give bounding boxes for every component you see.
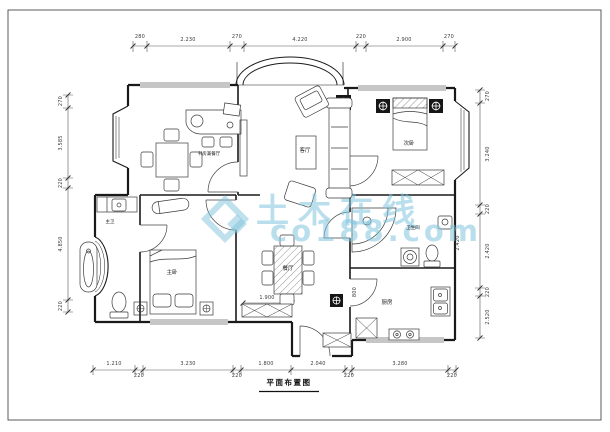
floor-plan-canvas: 土木在线 co188.com 书房兼餐厅 客厅 次卧 主卧 主卫 餐厅 厨房 卫… <box>0 0 610 432</box>
room-label-bath2: 卫生间 <box>406 225 420 231</box>
dim-label-bottom: 220 <box>344 373 354 379</box>
column-icon <box>330 294 343 307</box>
dim-label-left: 220 <box>58 301 64 311</box>
dim-label-inner: 2.420 <box>455 235 461 250</box>
dim-label-left: 220 <box>58 178 64 188</box>
room-label-master-bedroom: 主卧 <box>166 268 177 276</box>
furniture-entry <box>323 333 351 347</box>
room-label-kitchen: 厨房 <box>381 298 392 306</box>
dim-label-top: 2.900 <box>396 37 411 43</box>
dim-label-inner: 1.900 <box>259 295 274 301</box>
dim-label-top: 270 <box>232 34 242 40</box>
dim-label-bottom: 220 <box>447 373 457 379</box>
dim-label-top: 220 <box>356 34 366 40</box>
dim-label-bottom: 2.040 <box>310 361 325 367</box>
column-icon <box>429 99 443 113</box>
column-icon <box>376 99 390 113</box>
dim-label-bottom: 1.800 <box>258 361 273 367</box>
room-label-master-bath: 主卫 <box>106 219 115 225</box>
room-label-living: 客厅 <box>299 146 310 154</box>
dim-label-top: 4.220 <box>292 37 307 43</box>
dim-label-bottom: 1.210 <box>106 361 121 367</box>
furniture-master-bath <box>80 197 137 318</box>
dim-label-bottom: 220 <box>134 373 144 379</box>
dim-label-left: 4.850 <box>58 236 64 251</box>
dim-label-left: 270 <box>58 96 64 106</box>
watermark-site: co188.com <box>270 214 482 248</box>
watermark: 土木在线 co188.com <box>196 186 496 256</box>
dim-label-right: 270 <box>485 91 491 101</box>
drawing-title: 平面布置图 <box>267 377 312 388</box>
dim-label-right: 2.520 <box>485 309 491 324</box>
dim-label-bottom: 3.280 <box>392 361 407 367</box>
room-label-bedroom2: 次卧 <box>403 139 414 147</box>
dim-label-bottom: 220 <box>232 373 242 379</box>
balcony-arch <box>236 57 344 85</box>
room-label-dining: 餐厅 <box>282 264 293 272</box>
dim-label-bottom: 3.230 <box>180 361 195 367</box>
dim-label-inner: 800 <box>352 287 358 297</box>
dim-label-right: 220 <box>485 287 491 297</box>
dim-label-right: 2.420 <box>485 243 491 258</box>
dim-label-right: 3.240 <box>485 146 491 161</box>
room-label-study-dining: 书房兼餐厅 <box>198 151 221 157</box>
dim-label-top: 270 <box>444 34 454 40</box>
dim-label-top: 2.230 <box>180 37 195 43</box>
dim-label-left: 3.585 <box>58 135 64 150</box>
furniture-study <box>141 103 241 191</box>
dim-label-top: 280 <box>135 34 145 40</box>
dim-label-right: 220 <box>485 204 491 214</box>
furniture-kitchen <box>356 287 450 340</box>
